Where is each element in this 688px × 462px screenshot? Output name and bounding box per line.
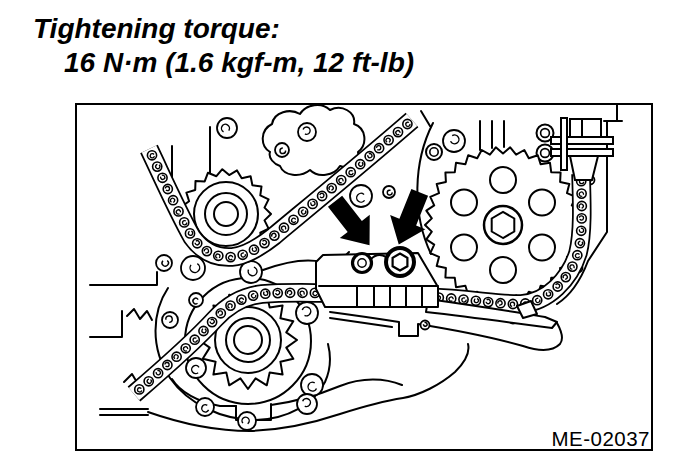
service-manual-page: Tightening torque: 16 N·m (1.6 kgf-m, 12… <box>0 0 688 462</box>
figure-code-label: ME-02037 <box>551 427 650 450</box>
timing-chain-diagram: ME-02037 <box>0 0 688 462</box>
chain-guide-bracket <box>316 253 438 307</box>
torque-bolt-hex <box>386 248 414 276</box>
torque-bolt-small <box>353 254 372 273</box>
